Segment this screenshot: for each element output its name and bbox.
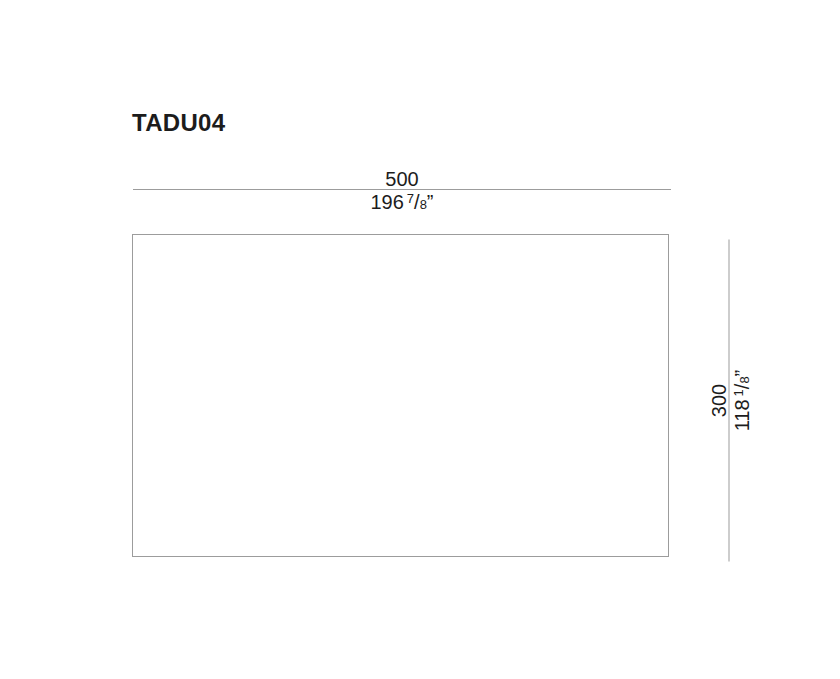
dimension-diagram: TADU04 500 1967/8” 300 1181/8” [0,0,840,679]
width-mm-text: 500 [385,169,418,189]
height-mm-text: 300 [709,383,729,416]
height-inches-whole: 118 [731,399,753,431]
height-fraction-slash: / [731,383,753,389]
width-inch-mark: ” [427,191,434,213]
height-inches-text: 1181/8” [732,369,752,431]
height-inch-mark: ” [731,369,753,376]
height-dimension: 300 1181/8” [704,239,755,561]
width-inches-text: 1967/8” [370,192,433,212]
width-value-mm: 500 [133,164,671,189]
height-value-inches: 1181/8” [730,239,755,561]
width-fraction-denominator: 8 [420,197,427,212]
width-value-inches: 1967/8” [133,190,671,215]
product-outline-rect [132,234,669,557]
height-fraction-denominator: 8 [737,376,752,383]
width-dimension: 500 1967/8” [133,164,671,215]
width-inches-whole: 196 [370,191,403,213]
product-code-title: TADU04 [132,109,225,137]
width-fraction-numerator: 7 [407,191,414,206]
height-value-mm: 300 [704,239,729,561]
height-fraction-numerator: 1 [731,389,746,396]
